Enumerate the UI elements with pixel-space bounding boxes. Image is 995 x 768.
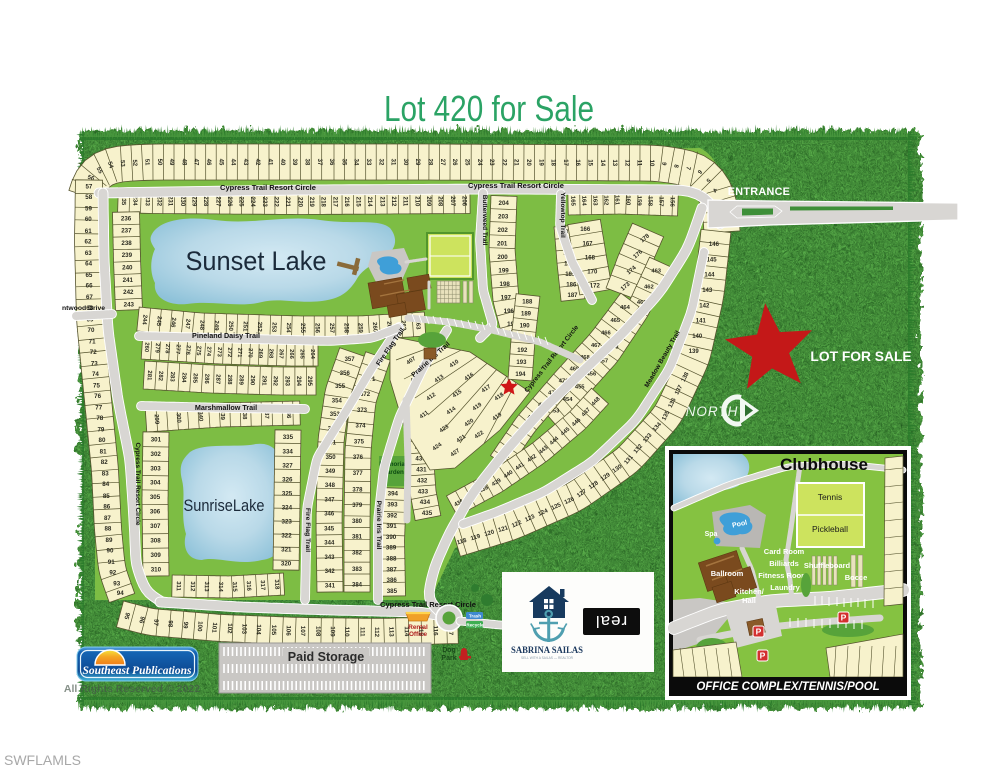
- svg-text:89: 89: [106, 537, 113, 544]
- svg-text:250: 250: [227, 321, 233, 332]
- svg-text:313: 313: [203, 582, 209, 593]
- svg-text:305: 305: [150, 494, 161, 501]
- svg-text:259: 259: [357, 323, 364, 334]
- svg-text:373: 373: [357, 408, 368, 414]
- svg-text:464: 464: [620, 305, 630, 311]
- svg-text:45: 45: [217, 159, 223, 166]
- svg-text:Cypress Trail Resort Circle: Cypress Trail Resort Circle: [380, 600, 476, 609]
- svg-text:237: 237: [121, 228, 132, 235]
- svg-text:110: 110: [343, 627, 350, 638]
- svg-text:207: 207: [449, 196, 455, 207]
- svg-text:327: 327: [282, 462, 293, 469]
- svg-text:274: 274: [205, 346, 212, 357]
- svg-text:All Rights Reserved © 2022: All Rights Reserved © 2022: [64, 683, 200, 695]
- svg-text:285: 285: [191, 373, 198, 384]
- svg-text:278: 278: [163, 344, 170, 355]
- svg-text:206: 206: [461, 196, 467, 207]
- svg-text:289: 289: [237, 375, 243, 386]
- svg-text:394: 394: [388, 491, 399, 498]
- svg-text:SWFLAMLS: SWFLAMLS: [4, 752, 81, 768]
- svg-text:200: 200: [497, 254, 508, 261]
- svg-text:71: 71: [89, 338, 96, 345]
- svg-text:159: 159: [635, 196, 641, 207]
- svg-text:P: P: [756, 627, 762, 637]
- svg-text:11: 11: [636, 160, 642, 167]
- svg-text:311: 311: [175, 581, 181, 591]
- svg-text:Pickleball: Pickleball: [812, 524, 848, 534]
- svg-text:Sunset Lake: Sunset Lake: [186, 246, 327, 276]
- svg-text:94: 94: [117, 590, 124, 597]
- svg-text:64: 64: [85, 261, 92, 268]
- svg-text:245: 245: [155, 316, 162, 327]
- svg-text:320: 320: [281, 561, 292, 568]
- svg-text:240: 240: [122, 265, 133, 272]
- svg-text:146: 146: [709, 242, 720, 248]
- svg-text:354: 354: [332, 398, 343, 404]
- svg-text:265: 265: [298, 349, 304, 359]
- svg-text:42: 42: [254, 159, 260, 166]
- svg-text:387: 387: [386, 566, 397, 573]
- svg-text:70: 70: [88, 327, 95, 334]
- svg-text:75: 75: [93, 383, 100, 390]
- svg-text:60: 60: [85, 216, 92, 223]
- svg-text:225: 225: [237, 197, 243, 208]
- svg-text:201: 201: [497, 241, 508, 248]
- svg-text:61: 61: [85, 228, 92, 235]
- svg-text:Dog: Dog: [442, 647, 456, 654]
- svg-text:165: 165: [569, 196, 575, 207]
- svg-text:236: 236: [121, 215, 132, 222]
- svg-text:62: 62: [85, 238, 92, 245]
- svg-text:16: 16: [574, 159, 580, 166]
- svg-text:Southeast Publications: Southeast Publications: [83, 665, 192, 677]
- svg-text:21: 21: [513, 159, 519, 166]
- svg-text:Yellowtop Trail: Yellowtop Trail: [559, 192, 566, 238]
- svg-text:455: 455: [575, 385, 585, 391]
- svg-text:256: 256: [314, 323, 320, 334]
- svg-text:111: 111: [359, 627, 366, 637]
- svg-text:243: 243: [124, 301, 135, 308]
- svg-text:158: 158: [646, 196, 652, 207]
- svg-text:282: 282: [157, 371, 164, 382]
- svg-text:93: 93: [113, 580, 120, 587]
- svg-text:213: 213: [379, 196, 385, 207]
- svg-text:53: 53: [119, 160, 125, 168]
- svg-text:275: 275: [195, 346, 202, 357]
- svg-text:284: 284: [180, 372, 187, 383]
- svg-text:SABRINA SAILAS: SABRINA SAILAS: [511, 646, 583, 656]
- svg-text:Park: Park: [441, 655, 456, 662]
- svg-text:39: 39: [291, 159, 297, 166]
- svg-text:160: 160: [624, 195, 630, 206]
- svg-text:32: 32: [377, 159, 383, 166]
- svg-text:224: 224: [249, 197, 255, 208]
- svg-text:22: 22: [500, 159, 506, 166]
- svg-text:113: 113: [387, 627, 394, 638]
- svg-text:270: 270: [247, 348, 253, 358]
- svg-text:168: 168: [585, 255, 596, 261]
- svg-text:80: 80: [99, 437, 106, 444]
- svg-text:186: 186: [566, 283, 577, 289]
- svg-text:317: 317: [259, 580, 266, 591]
- svg-text:434: 434: [420, 499, 431, 506]
- svg-text:162: 162: [602, 195, 608, 206]
- svg-text:Clubhouse: Clubhouse: [780, 455, 868, 474]
- svg-text:466: 466: [601, 330, 611, 336]
- svg-text:267: 267: [277, 349, 283, 359]
- svg-text:304: 304: [150, 480, 161, 487]
- svg-text:87: 87: [104, 515, 111, 522]
- svg-text:Kitchen/: Kitchen/: [734, 587, 765, 596]
- svg-text:325: 325: [282, 490, 293, 497]
- svg-text:357: 357: [345, 357, 356, 363]
- svg-text:157: 157: [657, 196, 663, 207]
- svg-text:47: 47: [193, 159, 199, 166]
- svg-text:88: 88: [104, 525, 111, 532]
- svg-text:103: 103: [240, 624, 247, 635]
- svg-text:66: 66: [86, 283, 93, 290]
- svg-text:203: 203: [498, 214, 509, 221]
- svg-text:108: 108: [314, 626, 321, 637]
- svg-text:276: 276: [184, 345, 191, 356]
- svg-text:242: 242: [123, 289, 134, 296]
- svg-text:248: 248: [198, 320, 204, 331]
- svg-text:335: 335: [283, 434, 294, 441]
- svg-text:101: 101: [210, 622, 218, 633]
- svg-text:Recycle: Recycle: [466, 623, 484, 628]
- svg-text:167: 167: [582, 241, 593, 247]
- svg-text:315: 315: [231, 582, 238, 593]
- svg-text:208: 208: [437, 196, 443, 207]
- svg-text:214: 214: [366, 197, 372, 208]
- svg-text:347: 347: [324, 498, 335, 504]
- svg-text:170: 170: [587, 269, 598, 275]
- svg-text:307: 307: [150, 523, 161, 530]
- svg-text:Cypress Trail Resort Circle: Cypress Trail Resort Circle: [468, 181, 564, 190]
- svg-text:268: 268: [267, 349, 273, 360]
- svg-text:83: 83: [102, 471, 109, 478]
- svg-text:323: 323: [282, 518, 293, 525]
- svg-text:210: 210: [414, 196, 420, 207]
- svg-text:34: 34: [353, 159, 359, 166]
- svg-text:Trash: Trash: [469, 614, 481, 619]
- svg-text:228: 228: [202, 196, 208, 207]
- svg-text:350: 350: [326, 455, 337, 461]
- svg-text:463: 463: [651, 269, 661, 275]
- svg-text:204: 204: [499, 200, 510, 207]
- svg-text:72: 72: [90, 349, 97, 356]
- svg-text:226: 226: [226, 196, 232, 207]
- svg-text:389: 389: [386, 545, 397, 552]
- svg-text:197: 197: [501, 295, 512, 302]
- svg-text:345: 345: [324, 526, 335, 532]
- svg-text:Spa: Spa: [705, 531, 718, 538]
- svg-text:31: 31: [390, 159, 396, 166]
- svg-text:50: 50: [156, 159, 162, 166]
- svg-text:266: 266: [288, 349, 294, 359]
- svg-text:35: 35: [340, 159, 346, 166]
- svg-text:Shuffleboard: Shuffleboard: [804, 561, 851, 570]
- svg-text:231: 231: [167, 196, 173, 207]
- svg-text:392: 392: [387, 512, 398, 519]
- svg-text:LOT FOR SALE: LOT FOR SALE: [810, 349, 911, 364]
- svg-text:73: 73: [91, 361, 98, 368]
- svg-text:OFFICE COMPLEX/TENNIS/POOL: OFFICE COMPLEX/TENNIS/POOL: [696, 681, 879, 693]
- svg-text:199: 199: [498, 268, 509, 275]
- svg-text:356: 356: [340, 371, 351, 377]
- svg-text:79: 79: [97, 427, 104, 434]
- svg-text:254: 254: [285, 323, 291, 334]
- svg-text:Billiards: Billiards: [769, 559, 799, 568]
- svg-text:211: 211: [401, 197, 407, 207]
- svg-text:Pineland Daisy Trail: Pineland Daisy Trail: [192, 331, 260, 340]
- svg-text:192: 192: [517, 348, 528, 354]
- svg-text:223: 223: [261, 197, 267, 208]
- svg-text:105: 105: [270, 625, 277, 636]
- svg-text:217: 217: [332, 197, 338, 208]
- svg-text:81: 81: [100, 449, 107, 456]
- svg-text:431: 431: [416, 466, 427, 473]
- svg-text:218: 218: [319, 197, 325, 208]
- svg-text:301: 301: [151, 436, 162, 443]
- svg-text:219: 219: [308, 197, 314, 208]
- svg-text:145: 145: [707, 257, 718, 263]
- svg-text:Fire Flag Trail: Fire Flag Trail: [304, 508, 311, 552]
- svg-text:NORTH: NORTH: [686, 404, 739, 419]
- svg-text:37: 37: [316, 159, 322, 166]
- svg-text:247: 247: [183, 318, 190, 329]
- svg-text:17: 17: [562, 159, 568, 166]
- svg-text:227: 227: [214, 196, 220, 207]
- svg-text:312: 312: [189, 581, 195, 592]
- svg-text:299: 299: [153, 414, 160, 425]
- svg-text:377: 377: [353, 471, 364, 477]
- svg-text:465: 465: [610, 318, 620, 324]
- svg-text:454: 454: [563, 397, 573, 403]
- svg-text:196: 196: [504, 308, 515, 315]
- svg-text:90: 90: [107, 548, 114, 555]
- svg-text:107: 107: [299, 626, 306, 637]
- svg-text:43: 43: [242, 159, 248, 166]
- svg-text:215: 215: [355, 197, 361, 208]
- svg-text:306: 306: [150, 509, 161, 516]
- svg-text:91: 91: [108, 559, 115, 566]
- svg-text:229: 229: [191, 196, 197, 207]
- svg-text:380: 380: [352, 519, 363, 525]
- svg-text:432: 432: [417, 478, 428, 485]
- svg-text:318: 318: [273, 579, 280, 590]
- svg-text:212: 212: [390, 196, 396, 207]
- svg-text:41: 41: [267, 159, 273, 166]
- svg-text:36: 36: [328, 159, 334, 166]
- svg-text:230: 230: [179, 196, 185, 207]
- svg-text:193: 193: [516, 360, 527, 366]
- svg-text:40: 40: [279, 159, 285, 166]
- svg-text:467: 467: [591, 343, 601, 349]
- svg-text:264: 264: [309, 349, 315, 359]
- svg-text:241: 241: [123, 277, 134, 284]
- svg-text:281: 281: [146, 370, 153, 381]
- svg-text:322: 322: [281, 533, 292, 540]
- svg-text:142: 142: [699, 303, 710, 309]
- svg-text:140: 140: [692, 334, 703, 340]
- svg-text:100: 100: [196, 621, 204, 632]
- svg-text:188: 188: [522, 299, 533, 305]
- svg-text:Cypress Trail Resort Circle: Cypress Trail Resort Circle: [220, 183, 316, 192]
- svg-text:67: 67: [86, 294, 93, 301]
- svg-text:Card Room: Card Room: [764, 547, 805, 556]
- svg-text:343: 343: [324, 555, 335, 561]
- svg-text:30: 30: [402, 159, 408, 166]
- svg-text:38: 38: [304, 159, 310, 166]
- svg-text:314: 314: [217, 582, 223, 593]
- svg-text:14: 14: [599, 159, 605, 166]
- svg-text:385: 385: [387, 588, 398, 595]
- svg-text:65: 65: [85, 272, 92, 279]
- svg-text:25: 25: [463, 159, 469, 166]
- svg-text:102: 102: [226, 623, 233, 634]
- svg-text:98: 98: [166, 620, 174, 628]
- svg-text:375: 375: [354, 440, 365, 446]
- svg-text:Prairie Iris Trail: Prairie Iris Trail: [375, 500, 382, 549]
- svg-text:258: 258: [342, 323, 348, 334]
- svg-text:190: 190: [520, 324, 531, 330]
- svg-text:346: 346: [324, 512, 335, 518]
- svg-text:271: 271: [236, 348, 242, 359]
- svg-text:P: P: [760, 651, 766, 661]
- svg-text:20: 20: [525, 159, 531, 166]
- svg-text:202: 202: [498, 227, 509, 234]
- svg-text:ntwood Drive: ntwood Drive: [62, 305, 105, 312]
- svg-text:255: 255: [299, 323, 305, 334]
- svg-text:244: 244: [140, 314, 147, 325]
- svg-text:384: 384: [352, 582, 363, 588]
- svg-text:77: 77: [95, 405, 102, 412]
- svg-text:232: 232: [155, 196, 161, 207]
- svg-text:51: 51: [143, 159, 149, 167]
- svg-text:288: 288: [226, 374, 232, 385]
- svg-text:294: 294: [295, 376, 301, 387]
- svg-text:303: 303: [150, 465, 161, 472]
- svg-text:ENTRANCE: ENTRANCE: [728, 186, 790, 198]
- svg-text:85: 85: [103, 493, 110, 500]
- svg-text:26: 26: [451, 159, 457, 166]
- svg-text:Butterweed Trail: Butterweed Trail: [481, 195, 488, 246]
- svg-text:435: 435: [422, 510, 433, 517]
- svg-text:269: 269: [257, 348, 263, 359]
- svg-text:82: 82: [101, 459, 108, 466]
- svg-text:272: 272: [226, 347, 232, 357]
- svg-text:253: 253: [270, 322, 276, 333]
- svg-text:293: 293: [283, 376, 289, 387]
- svg-text:84: 84: [102, 481, 109, 488]
- svg-text:Office: Office: [409, 631, 428, 638]
- svg-text:291: 291: [260, 375, 266, 386]
- svg-text:49: 49: [168, 159, 174, 166]
- svg-text:246: 246: [169, 317, 176, 328]
- svg-text:324: 324: [282, 504, 293, 511]
- svg-text:28: 28: [427, 159, 433, 166]
- svg-text:Fitness Room: Fitness Room: [758, 571, 808, 580]
- svg-text:302: 302: [151, 451, 162, 458]
- svg-text:383: 383: [352, 567, 363, 573]
- svg-text:341: 341: [325, 584, 336, 590]
- svg-text:139: 139: [689, 349, 700, 355]
- svg-text:342: 342: [325, 569, 336, 575]
- svg-text:393: 393: [387, 501, 398, 508]
- svg-text:321: 321: [281, 547, 292, 554]
- svg-text:277: 277: [174, 344, 181, 354]
- svg-text:Ballroom: Ballroom: [711, 569, 744, 578]
- svg-text:308: 308: [150, 538, 161, 545]
- svg-text:104: 104: [255, 624, 262, 635]
- svg-text:295: 295: [306, 376, 312, 387]
- svg-text:48: 48: [180, 159, 186, 166]
- svg-text:141: 141: [696, 319, 707, 325]
- svg-text:310: 310: [151, 566, 162, 573]
- svg-text:58: 58: [85, 194, 92, 201]
- svg-text:187: 187: [567, 293, 578, 299]
- svg-text:Lot 420 for Sale: Lot 420 for Sale: [384, 88, 594, 129]
- svg-text:86: 86: [103, 503, 110, 510]
- svg-text:198: 198: [500, 281, 511, 288]
- svg-text:SunriseLake: SunriseLake: [184, 497, 265, 515]
- svg-text:99: 99: [181, 621, 189, 629]
- svg-text:59: 59: [85, 206, 92, 213]
- svg-text:433: 433: [418, 489, 429, 496]
- svg-text:76: 76: [94, 393, 101, 400]
- svg-text:381: 381: [352, 535, 363, 541]
- svg-text:166: 166: [580, 227, 591, 233]
- svg-text:249: 249: [213, 320, 219, 331]
- svg-text:260: 260: [143, 342, 150, 352]
- svg-text:216: 216: [343, 197, 349, 208]
- svg-text:143: 143: [702, 288, 713, 294]
- svg-text:273: 273: [216, 347, 223, 358]
- svg-text:279: 279: [153, 343, 160, 354]
- svg-text:300: 300: [175, 413, 182, 424]
- svg-text:78: 78: [96, 415, 103, 422]
- svg-text:144: 144: [704, 273, 715, 279]
- svg-text:326: 326: [282, 476, 293, 483]
- svg-text:386: 386: [387, 577, 398, 584]
- svg-text:374: 374: [355, 423, 366, 429]
- svg-text:33: 33: [365, 159, 371, 166]
- svg-text:316: 316: [245, 581, 252, 592]
- svg-text:Laundry: Laundry: [770, 583, 800, 592]
- svg-text:44: 44: [230, 159, 236, 166]
- svg-text:388: 388: [386, 556, 397, 563]
- svg-text:194: 194: [515, 372, 526, 378]
- svg-text:355: 355: [335, 384, 346, 390]
- svg-text:109: 109: [329, 626, 336, 637]
- svg-text:27: 27: [439, 159, 445, 166]
- svg-text:156: 156: [668, 197, 674, 208]
- svg-text:12: 12: [623, 160, 629, 167]
- svg-text:222: 222: [273, 197, 279, 208]
- svg-text:344: 344: [324, 540, 335, 546]
- svg-text:164: 164: [580, 196, 586, 207]
- svg-text:116: 116: [432, 626, 439, 637]
- svg-text:97: 97: [152, 619, 160, 627]
- svg-text:292: 292: [272, 376, 278, 387]
- svg-text:57: 57: [85, 184, 92, 191]
- svg-text:376: 376: [353, 455, 364, 461]
- svg-text:462: 462: [644, 284, 654, 290]
- svg-text:112: 112: [373, 627, 380, 638]
- svg-text:286: 286: [203, 374, 210, 385]
- svg-text:257: 257: [328, 323, 334, 334]
